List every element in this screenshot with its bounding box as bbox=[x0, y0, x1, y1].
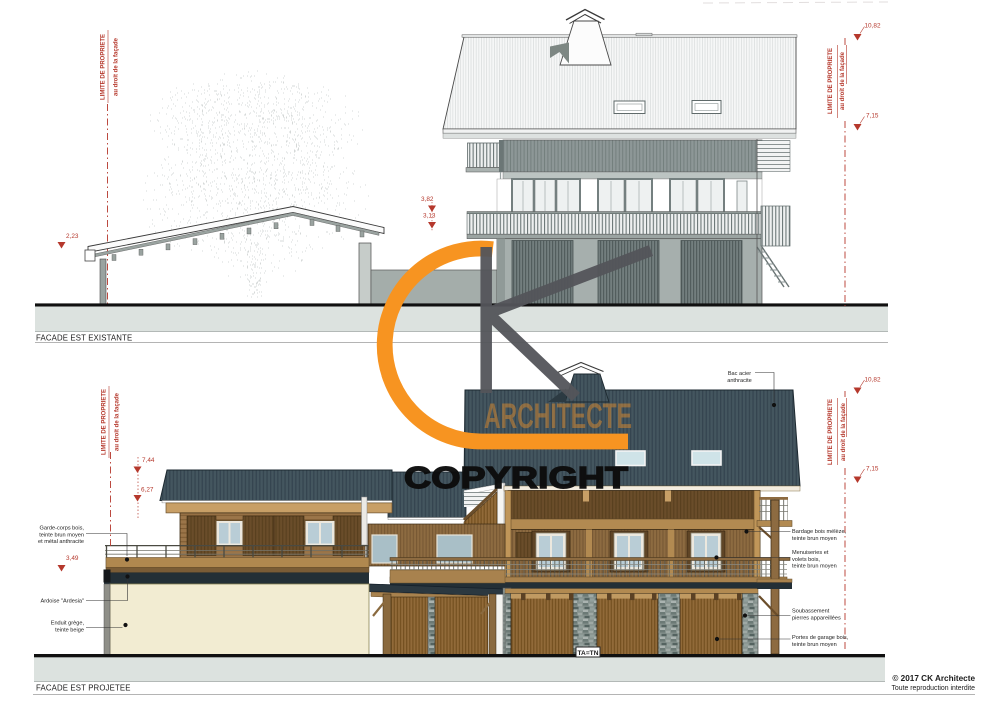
svg-text:7,15: 7,15 bbox=[866, 466, 879, 473]
svg-text:10,82: 10,82 bbox=[865, 377, 881, 384]
svg-text:au droit de la façade: au droit de la façade bbox=[841, 402, 847, 461]
svg-text:FACADE EST EXISTANTE: FACADE EST EXISTANTE bbox=[36, 334, 132, 343]
svg-text:© 2017 CK Architecte: © 2017 CK Architecte bbox=[892, 674, 975, 683]
svg-text:Ardoise "Ardesia": Ardoise "Ardesia" bbox=[41, 599, 84, 605]
svg-text:volets bois,: volets bois, bbox=[792, 557, 820, 563]
svg-text:Portes de garage bois,: Portes de garage bois, bbox=[792, 635, 849, 641]
svg-text:Bardage bois mélèze,: Bardage bois mélèze, bbox=[792, 529, 847, 535]
svg-text:7,44: 7,44 bbox=[142, 457, 155, 464]
svg-text:LIMITE DE PROPRIETE: LIMITE DE PROPRIETE bbox=[828, 399, 834, 465]
svg-text:teinte brun moyen: teinte brun moyen bbox=[792, 536, 837, 542]
svg-text:LIMITE DE PROPRIETE: LIMITE DE PROPRIETE bbox=[101, 34, 107, 100]
svg-text:LIMITE DE PROPRIETE: LIMITE DE PROPRIETE bbox=[102, 389, 108, 455]
svg-text:au droit de la façade: au droit de la façade bbox=[840, 51, 846, 110]
svg-text:teinte beige: teinte beige bbox=[55, 627, 84, 633]
svg-text:teinte brun moyen: teinte brun moyen bbox=[39, 532, 84, 538]
svg-text:Enduit grège,: Enduit grège, bbox=[51, 621, 85, 627]
svg-text:7,15: 7,15 bbox=[866, 113, 879, 120]
svg-text:TA=TN: TA=TN bbox=[578, 650, 599, 657]
svg-text:LIMITE DE PROPRIETE: LIMITE DE PROPRIETE bbox=[828, 48, 834, 114]
svg-text:pierres appareillées: pierres appareillées bbox=[792, 615, 841, 621]
svg-text:Toute reproduction interdite: Toute reproduction interdite bbox=[891, 685, 975, 692]
svg-text:Bac acier: Bac acier bbox=[728, 371, 751, 377]
svg-text:teinte brun moyen: teinte brun moyen bbox=[792, 564, 837, 570]
svg-text:ARCHITECTE: ARCHITECTE bbox=[484, 397, 632, 436]
svg-text:3,13: 3,13 bbox=[423, 213, 436, 220]
svg-text:FACADE EST PROJETEE: FACADE EST PROJETEE bbox=[36, 684, 131, 693]
svg-text:2,23: 2,23 bbox=[66, 233, 79, 240]
svg-text:au droit de la façade: au droit de la façade bbox=[114, 37, 120, 96]
svg-text:10,82: 10,82 bbox=[865, 23, 881, 30]
svg-text:3,49: 3,49 bbox=[66, 555, 79, 562]
svg-text:Garde-corps bois,: Garde-corps bois, bbox=[40, 526, 85, 532]
svg-text:Menuiseries et: Menuiseries et bbox=[792, 550, 829, 556]
svg-text:3,82: 3,82 bbox=[421, 196, 434, 203]
svg-text:anthracite: anthracite bbox=[727, 378, 752, 384]
svg-text:Soubassement: Soubassement bbox=[792, 609, 830, 615]
svg-text:COPYRIGHT: COPYRIGHT bbox=[404, 461, 628, 495]
svg-text:teinte brun moyen: teinte brun moyen bbox=[792, 642, 837, 648]
svg-text:et métal anthracite: et métal anthracite bbox=[38, 539, 84, 545]
svg-text:6,27: 6,27 bbox=[141, 487, 154, 494]
svg-text:au droit de la façade: au droit de la façade bbox=[115, 392, 121, 451]
